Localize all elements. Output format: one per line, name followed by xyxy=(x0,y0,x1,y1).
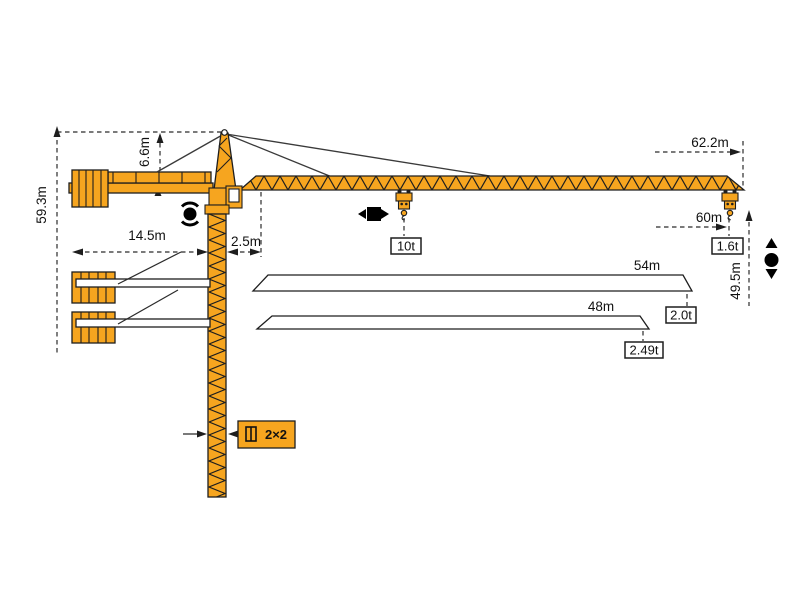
apex-height-label: 6.6m xyxy=(137,137,152,167)
tip-load-54-label: 2.0t xyxy=(670,308,692,323)
mast-lattice xyxy=(208,214,226,497)
working-radius-label: 60m xyxy=(696,210,722,225)
counter-jib xyxy=(69,170,213,207)
tower-crane-diagram: 59.3m 6.6m xyxy=(0,0,800,600)
arrow-right-icon xyxy=(197,431,207,438)
rear-offset-label: 2.5m xyxy=(231,234,261,249)
jib-48-label: 48m xyxy=(588,299,614,314)
jib-variant-54: 54m 2.0t xyxy=(253,258,696,323)
counterjib-bar xyxy=(76,279,210,287)
arrow-left-icon xyxy=(228,431,238,438)
jib-lattice xyxy=(240,176,744,190)
dim-working-radius: 60m xyxy=(656,210,727,231)
trolley-travel-icon xyxy=(358,207,389,221)
jib-variant-48: 48m 2.49t xyxy=(257,299,663,358)
hook-height-label: 49.5m xyxy=(728,262,743,300)
pendant-right-1 xyxy=(226,134,332,177)
ballast-variant-1 xyxy=(72,252,210,303)
max-load-label: 10t xyxy=(397,239,415,254)
hoisting-icon xyxy=(765,238,779,279)
arrow-right-icon xyxy=(197,249,208,256)
slewing-unit xyxy=(205,205,229,214)
tip-load-48-label: 2.49t xyxy=(630,343,659,358)
apex-structure xyxy=(214,133,236,190)
counterjib-radius-label: 14.5m xyxy=(128,228,166,243)
tower-mast xyxy=(205,188,229,497)
counterweight-block xyxy=(72,170,108,207)
mast-section-callout: 2×2 xyxy=(183,421,295,448)
tip-load-60-label: 1.6t xyxy=(717,239,739,254)
arrow-up-icon xyxy=(746,210,753,221)
arrow-right-icon xyxy=(250,249,261,256)
pendant-left xyxy=(157,134,224,172)
counterjib-bar xyxy=(76,319,210,327)
jib-48-outline xyxy=(257,316,649,329)
dim-counterjib-radius: 14.5m xyxy=(72,228,208,256)
overall-tip-radius-label: 62.2m xyxy=(691,135,729,150)
dim-hook-height: 49.5m xyxy=(728,210,753,306)
arrow-right-icon xyxy=(730,149,741,156)
crane-diagram-page: 59.3m 6.6m xyxy=(0,0,800,600)
jib xyxy=(240,176,744,190)
arrow-left-icon xyxy=(72,249,83,256)
trolley-hook-mid: 10t xyxy=(391,190,421,255)
jib-54-label: 54m xyxy=(634,258,660,273)
apex-pin xyxy=(222,130,228,136)
slewing-icon xyxy=(182,203,198,225)
trolley-hook xyxy=(722,190,738,220)
jib-54-outline xyxy=(253,275,692,291)
mast-section-label: 2×2 xyxy=(265,427,287,442)
arrow-left-icon xyxy=(227,249,238,256)
total-height-label: 59.3m xyxy=(34,186,49,224)
mast-section-icon xyxy=(246,427,256,441)
trolley-hook xyxy=(396,190,412,220)
arrow-up-icon xyxy=(157,133,164,143)
pendant-right-2 xyxy=(226,134,490,176)
cab-window xyxy=(229,189,239,202)
mast-upper xyxy=(209,188,226,205)
